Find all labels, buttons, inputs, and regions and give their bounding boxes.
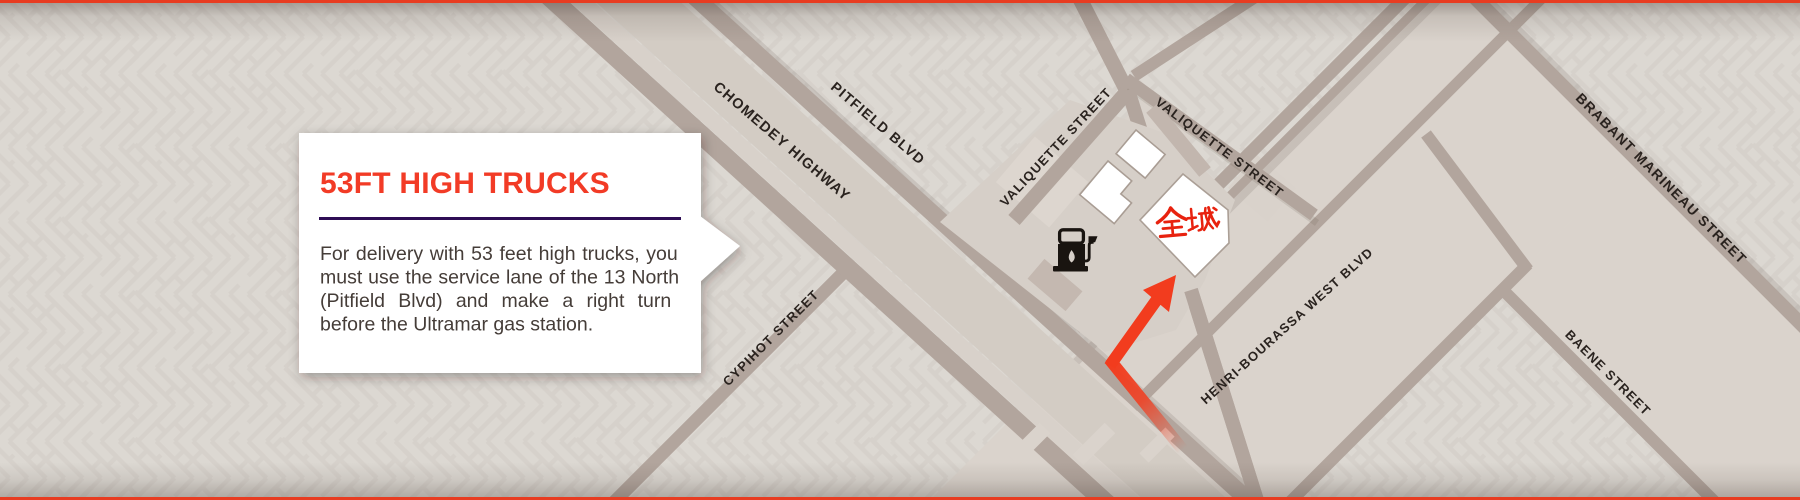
svg-text:53FT HIGH TRUCKS: 53FT HIGH TRUCKS bbox=[320, 167, 610, 200]
svg-text:must use the service lane of t: must use the service lane of the 13 Nort… bbox=[320, 267, 679, 289]
svg-text:For delivery with 53 feet high: For delivery with 53 feet high trucks, y… bbox=[320, 243, 678, 265]
svg-text:(Pitfield Blvd) and make a rig: (Pitfield Blvd) and make a right turn bbox=[320, 290, 671, 312]
svg-text:before the Ultramar gas statio: before the Ultramar gas station. bbox=[320, 314, 593, 336]
